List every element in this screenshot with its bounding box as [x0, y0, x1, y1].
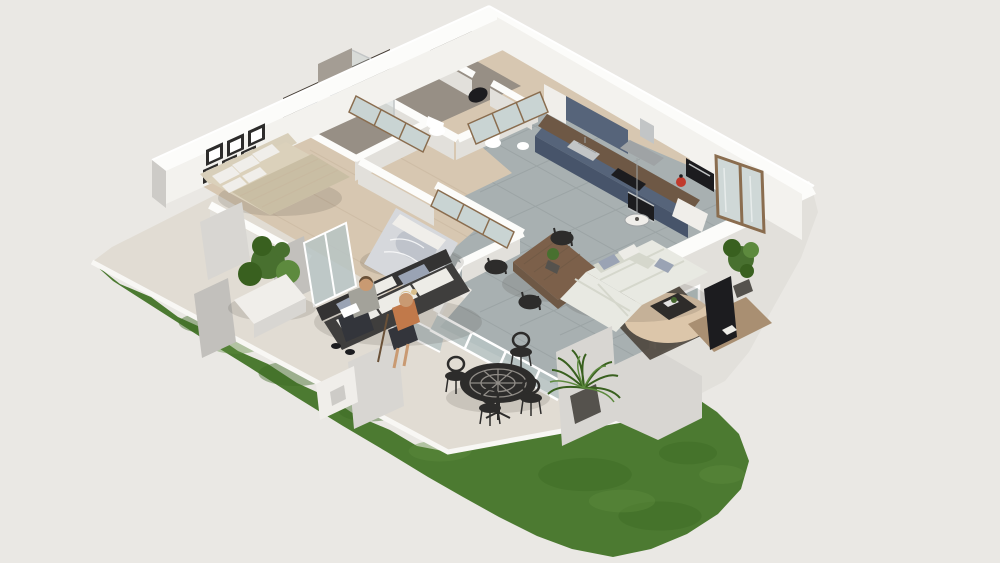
wc2-basin	[517, 142, 529, 150]
woman-head	[399, 293, 413, 307]
pendant-lamp-bulb	[635, 217, 639, 221]
dining-centerpiece-plant	[547, 248, 559, 260]
tv-screen	[704, 276, 737, 350]
planter-shrub-2	[238, 262, 262, 286]
planter-shrub-4	[252, 236, 272, 256]
living-plant-foliage-3	[743, 242, 759, 258]
man-shoe-1	[331, 343, 341, 349]
fire-extinguisher-top	[679, 174, 683, 178]
wc1-toilet-bowl	[429, 126, 445, 136]
living-plant-foliage-4	[740, 264, 754, 278]
planter-shrub-5	[274, 242, 290, 258]
man-shoe-2	[345, 349, 355, 355]
living-plant-foliage-2	[723, 239, 741, 257]
floorplan-svg	[0, 0, 1000, 563]
floorplan-render	[0, 0, 1000, 563]
fire-extinguisher	[676, 177, 686, 187]
